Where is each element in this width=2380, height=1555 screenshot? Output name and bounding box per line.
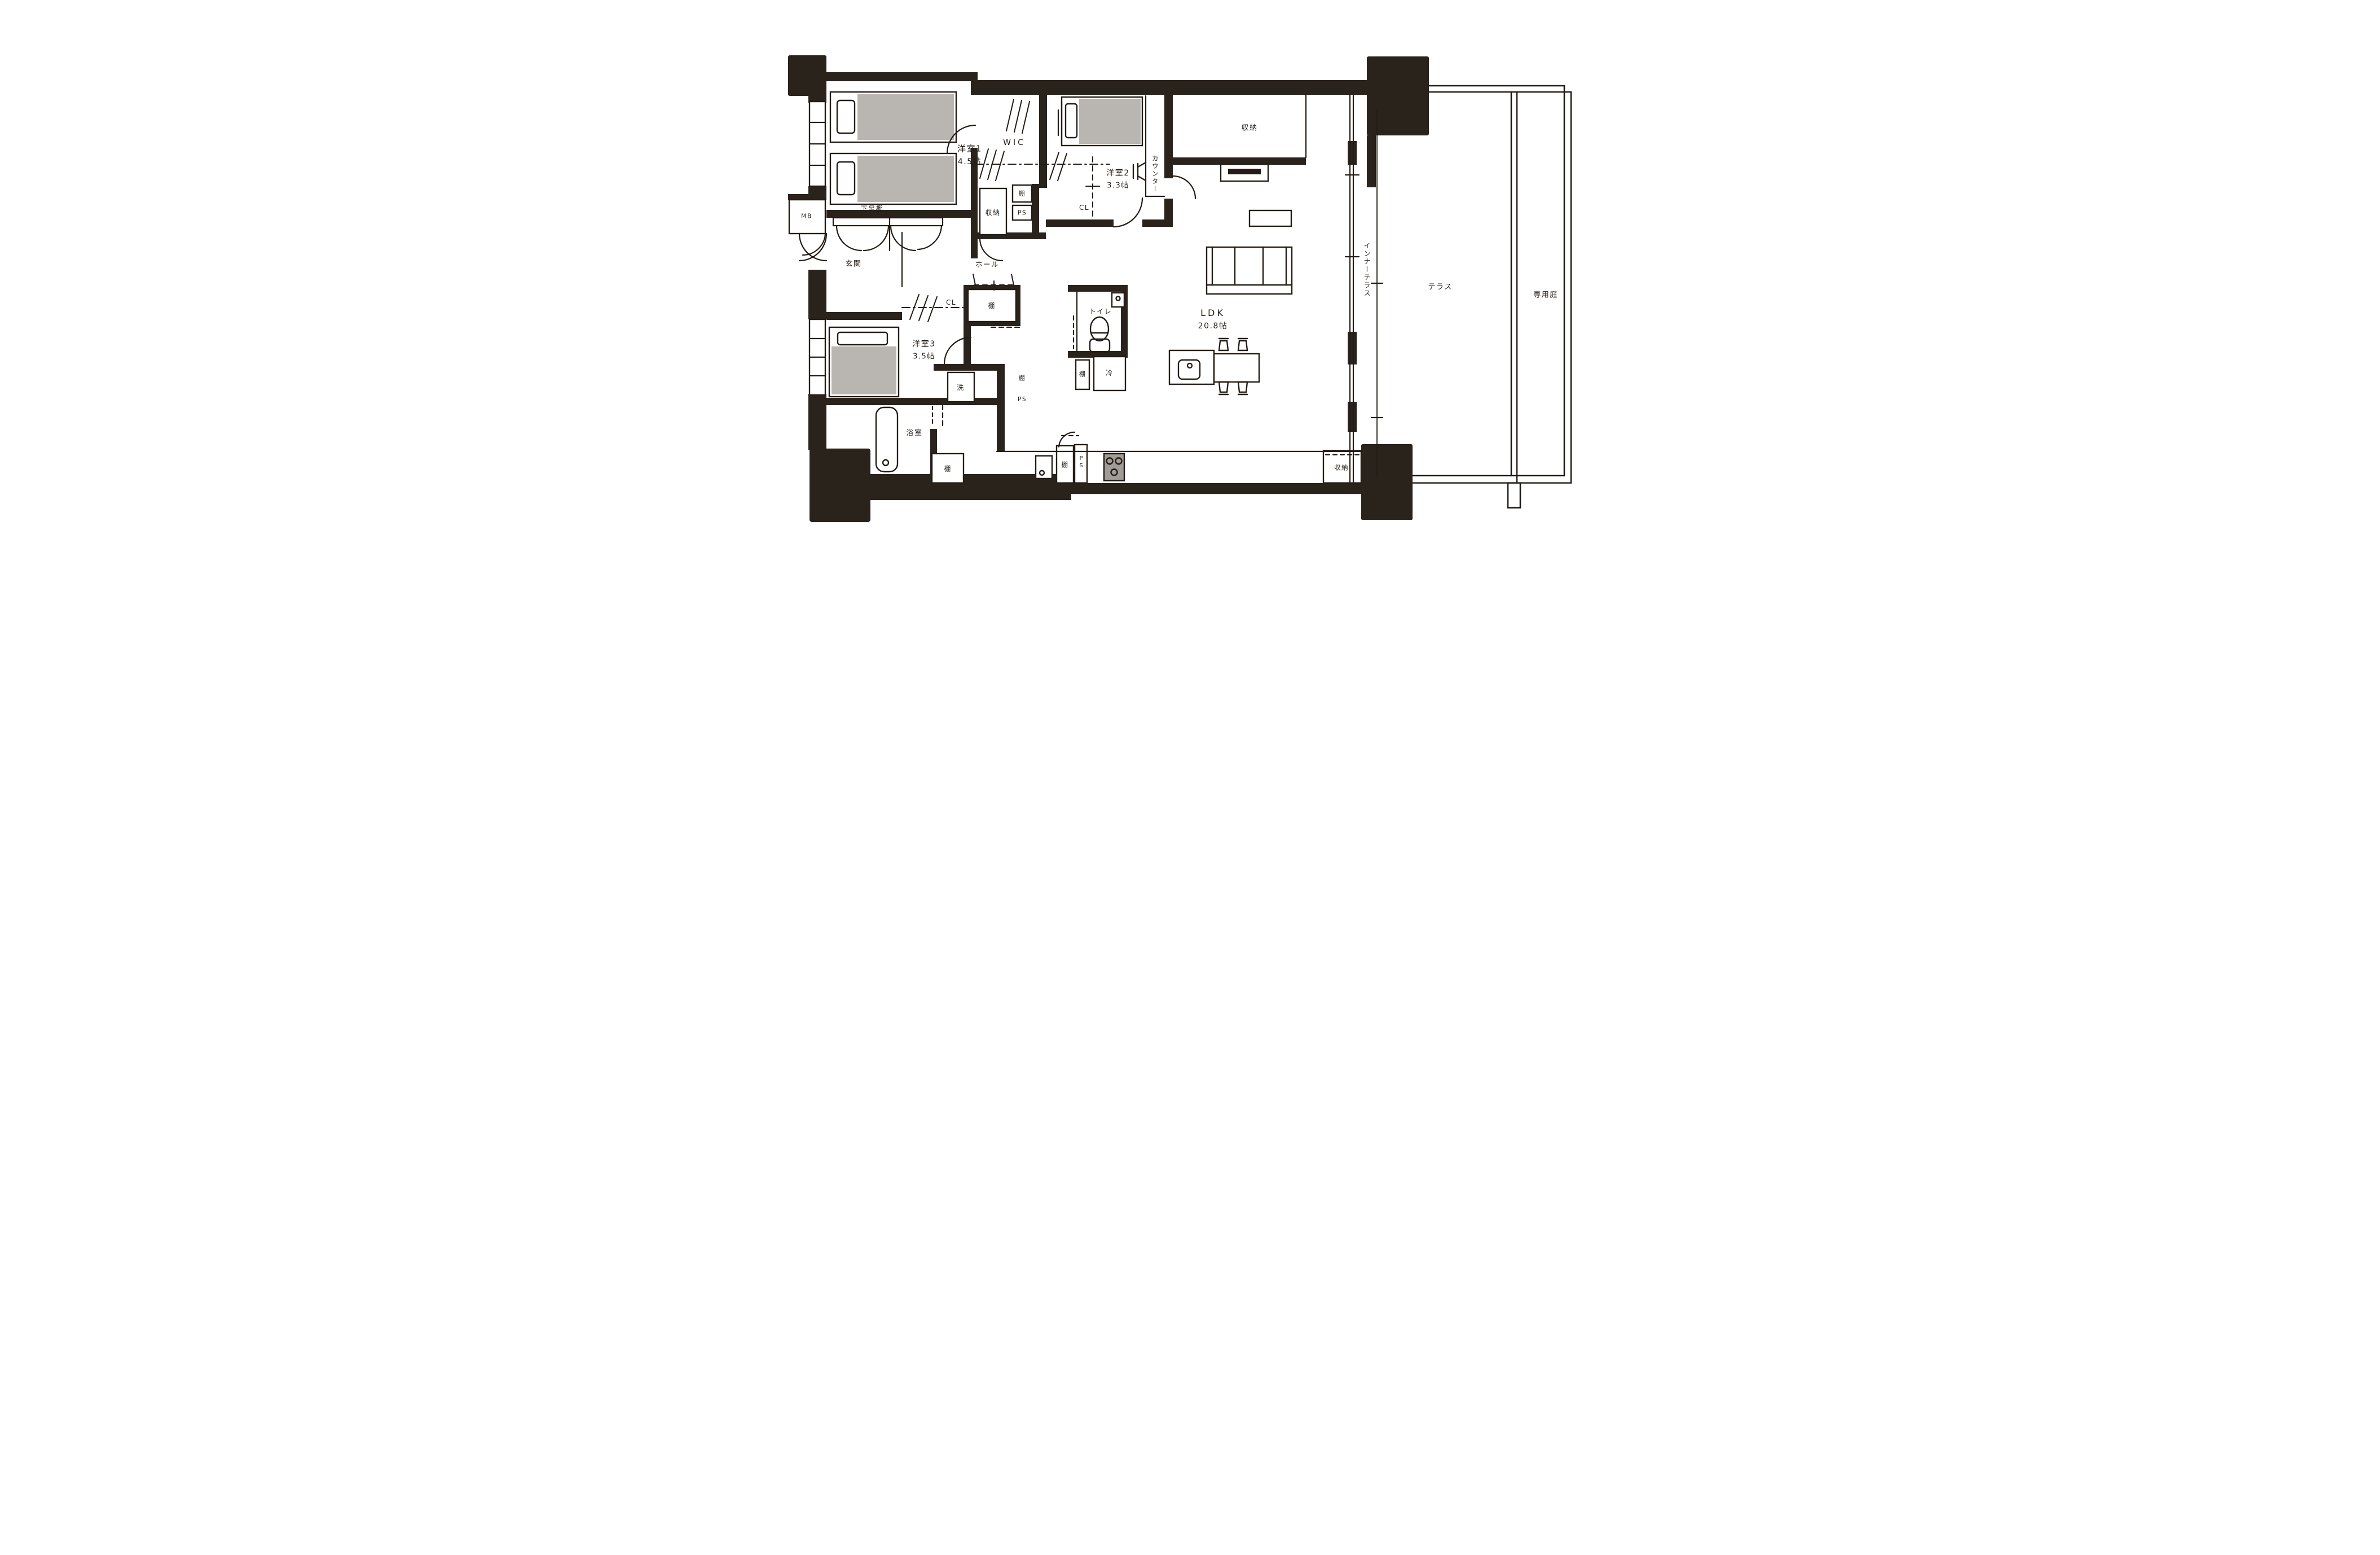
wall-yoshitsu1-bottom [826, 210, 975, 218]
bathtub [876, 407, 898, 472]
inner-terrace-label: インナーテラス [1363, 242, 1370, 297]
wall-mid-column [1032, 184, 1039, 239]
wall-glass-pillar-b [1348, 332, 1357, 364]
shoe-door-arc-4 [918, 226, 942, 249]
room-size-yoshitsu3: 3.5帖 [913, 353, 935, 361]
shoe-door-arc-3 [891, 226, 916, 251]
bed-2 [830, 153, 956, 204]
hall-shelf-label: 棚 [988, 302, 996, 309]
chair-top-1 [1219, 339, 1228, 350]
cl2-label: CL [1079, 204, 1089, 211]
stove [1104, 454, 1124, 481]
room-size-yoshitsu1: 4.5帖 [958, 158, 982, 166]
shoe-shelf-box [833, 218, 943, 226]
bed-4 [829, 327, 899, 397]
wall-yoshitsu3-top [826, 312, 902, 320]
ldk-size: 20.8帖 [1198, 322, 1228, 330]
terrace-label: テラス [1428, 284, 1452, 291]
chair-top-2 [1238, 339, 1247, 350]
closet1-label: 収納 [985, 209, 1000, 216]
wall-top-yoshitsu1 [826, 72, 978, 81]
wall-top-main [971, 80, 1370, 95]
shelf-toilet-label: 棚 [1079, 371, 1086, 377]
wall-washroom-top [934, 364, 1005, 371]
coffee-table [1250, 210, 1291, 226]
wall-yoshitsu2-bottom-l [1046, 219, 1114, 227]
wall-wic-yoshitsu2 [1039, 95, 1047, 188]
wall-leg-top-right [1367, 135, 1376, 187]
furniture [829, 92, 1292, 481]
counter-label: カウンター [1151, 155, 1158, 193]
garden-label: 専用庭 [1533, 292, 1558, 299]
sofa [1207, 247, 1292, 294]
wall-yoshitsu2-right-low [1164, 199, 1173, 227]
kitchen-door-arc [1059, 432, 1075, 447]
wall-pillar-top-right [1367, 56, 1429, 135]
wall-hall-shelf-top [964, 285, 1020, 289]
room-label-yoshitsu3: 洋室3 [912, 340, 935, 348]
fridge-label: 冷 [1106, 370, 1114, 376]
storage-top-label: 収納 [1241, 125, 1257, 132]
wall-mb-top [788, 194, 826, 200]
wall-bottom-right-band [1071, 483, 1363, 494]
genkan-label: 玄関 [845, 261, 861, 268]
wall-pillar-bottom-right [1361, 444, 1413, 520]
wall-toilet-top [1068, 285, 1128, 292]
wall-washroom-right [997, 364, 1005, 451]
counter-chair [1133, 162, 1146, 181]
room-label-wic: WIC [1003, 139, 1026, 147]
storage-br-label: 収納 [1334, 464, 1349, 471]
yoshitsu2-ldk-door-arc [1173, 176, 1195, 199]
wall-glass-pillar-c [1348, 402, 1357, 432]
shoe-shelf-label: 下足棚 [861, 205, 884, 212]
dining-table [1214, 339, 1259, 394]
bed-1 [830, 92, 956, 142]
bed-3 [1062, 97, 1142, 146]
room-size-yoshitsu2: 3.3帖 [1107, 182, 1129, 190]
wall-yoshitsu2-right-up [1164, 95, 1173, 178]
wall-block-top-left [788, 55, 826, 96]
wall-left-seg3 [808, 270, 826, 319]
kitchen-island [1169, 350, 1214, 384]
mb-label: MB [801, 213, 812, 219]
chair-bottom-2 [1238, 382, 1247, 394]
shoe-door-arc-2 [864, 226, 888, 251]
chair-bottom-1 [1219, 382, 1228, 394]
cl2-symbols [1050, 152, 1099, 221]
shoe-door-arc-1 [837, 226, 861, 251]
cl3-label: CL [946, 299, 956, 306]
toilet-label: トイレ [1089, 308, 1112, 315]
shelf-wash-label: 棚 [1019, 375, 1026, 381]
room-label-yoshitsu1: 洋室1 [957, 145, 982, 153]
shelf-bottom-label: 棚 [1062, 462, 1069, 468]
bath-label: 浴室 [906, 430, 922, 437]
wall-hall-shelf-bottom [964, 322, 1020, 326]
washer-label: 洗 [957, 384, 965, 391]
yoshitsu2-door-arc [1114, 198, 1142, 227]
wall-glass-pillar-a [1348, 141, 1357, 165]
ldk-label: LDK [1200, 309, 1225, 318]
floorplan-drawing [754, 0, 1626, 570]
kitchen-sink-box [1036, 456, 1052, 478]
room-label-yoshitsu2: 洋室2 [1106, 169, 1129, 177]
shelf-top-label: 棚 [1019, 191, 1026, 197]
wall-left-seg4 [808, 394, 826, 450]
shelf-bl-label: 棚 [944, 465, 952, 472]
hall-label: ホール [975, 261, 999, 269]
tv-board [1221, 164, 1268, 181]
wall-yoshitsu3-right [964, 326, 971, 370]
floor-plan: 洋室1 4.5帖 WIC 収納 棚 PS 洋室2 3.3帖 カウンター CL 収… [754, 0, 1626, 570]
ps-wash-label: PS [1018, 397, 1027, 403]
lines-and-doors [799, 86, 1571, 508]
ps-bottom-label: PS [1078, 455, 1084, 470]
ps-top-label: PS [1018, 210, 1027, 216]
closet1-door-arc [980, 239, 1002, 261]
